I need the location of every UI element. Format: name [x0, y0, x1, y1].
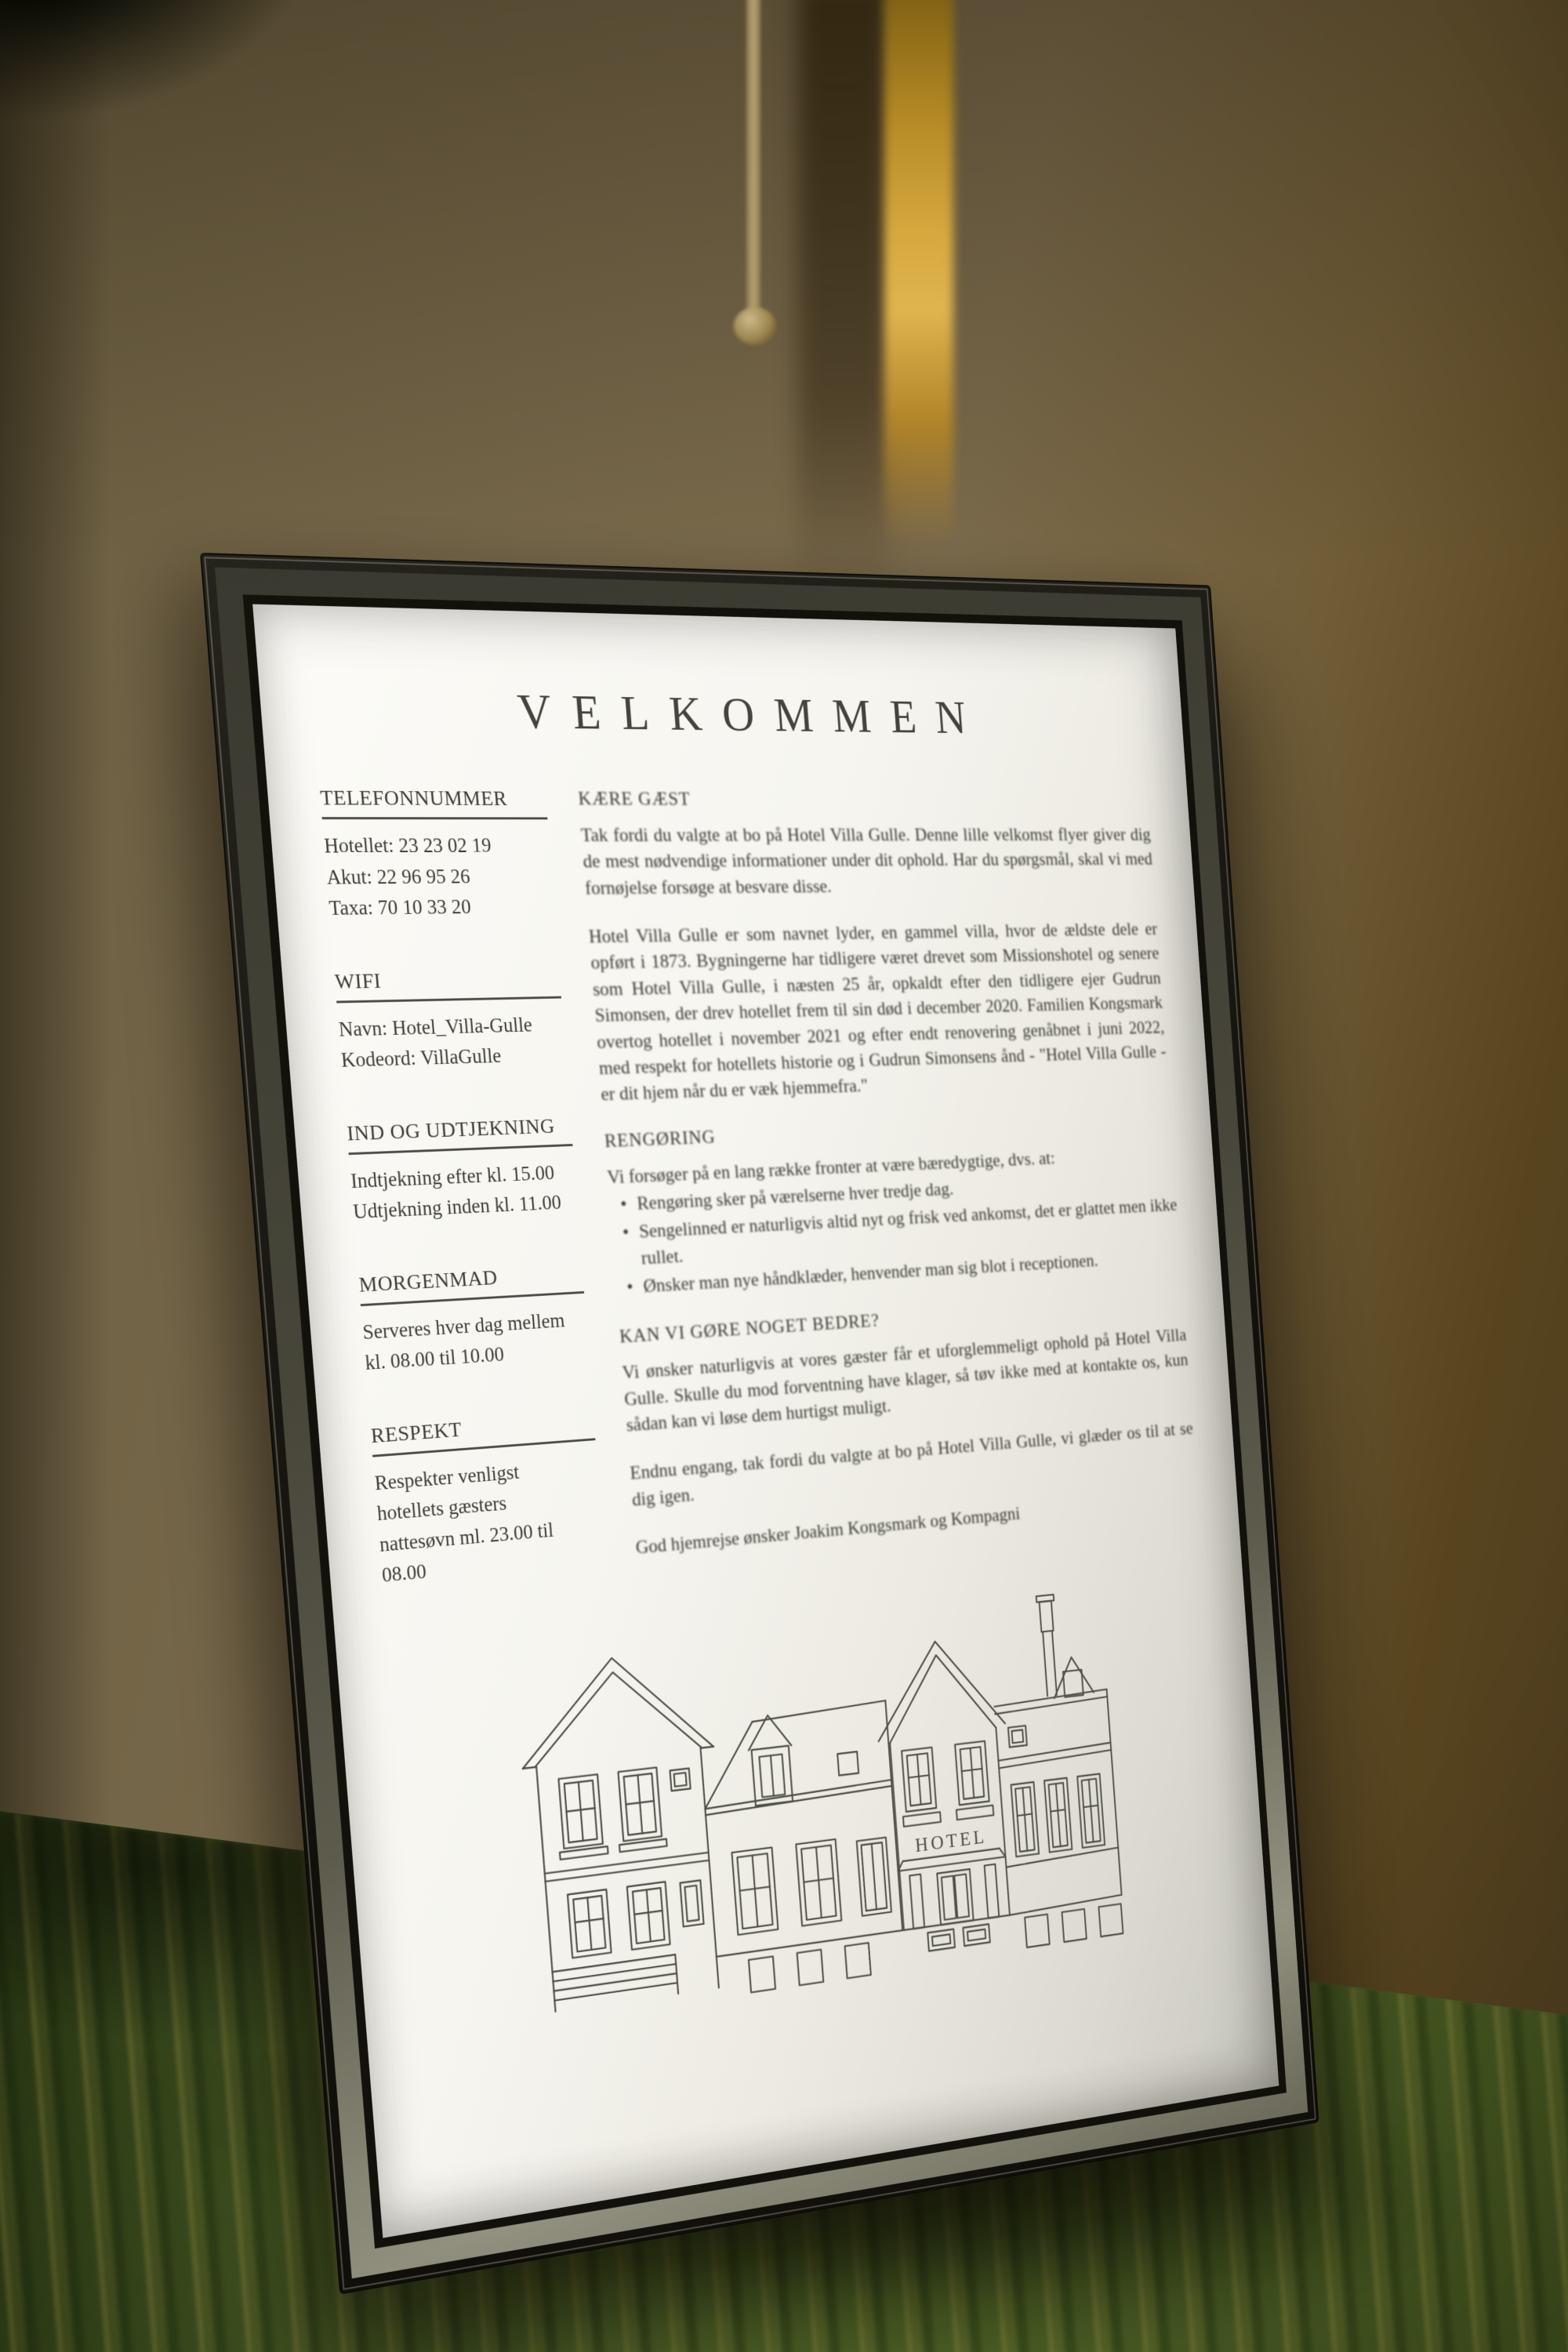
section-checkinout: IND OG UDTJEKNING Indtjekning efter kl. …: [346, 1114, 578, 1228]
history-paragraph: Hotel Villa Gulle er som navnet lyder, e…: [588, 916, 1169, 1108]
phone-line: Akut: 22 96 95 26: [325, 860, 553, 892]
section-heading: TELEFONNUMMER: [319, 786, 547, 820]
section-respekt: RESPEKT Respekter venligst hotellets gæs…: [370, 1408, 605, 1591]
document-body: TELEFONNUMMER Hotellet: 23 23 02 19 Akut…: [309, 786, 1208, 1637]
photo-scene: VELKOMMEN TELEFONNUMMER Hotellet: 23 23 …: [0, 0, 1568, 2352]
phone-line: Hotellet: 23 23 02 19: [323, 830, 551, 862]
frame-bevel: VELKOMMEN TELEFONNUMMER Hotellet: 23 23 …: [215, 568, 1308, 2279]
section-heading: IND OG UDTJEKNING: [346, 1114, 572, 1155]
phone-line: Taxa: 70 10 33 20: [328, 891, 555, 924]
info-column: TELEFONNUMMER Hotellet: 23 23 02 19 Akut…: [319, 786, 608, 1636]
section-heading: RESPEKT: [370, 1408, 596, 1457]
dear-guest-heading: KÆRE GÆST: [577, 787, 1149, 811]
cord-bead: [734, 307, 776, 345]
curtain-shadow: [798, 0, 888, 596]
dear-guest-paragraph: Tak fordi du valgte at bo på Hotel Villa…: [580, 822, 1155, 901]
gold-curtain-stripe: [884, 0, 953, 544]
section-wifi: WIFI Navn: Hotel_Villa-Gulle Kodeord: Vi…: [334, 966, 567, 1076]
wifi-line: Navn: Hotel_Villa-Gulle: [337, 1008, 564, 1044]
page-title: VELKOMMEN: [300, 680, 1150, 747]
section-heading: MORGENMAD: [358, 1261, 584, 1306]
section-heading: WIFI: [334, 966, 561, 1003]
hotel-building-drawing: HOTEL: [500, 1580, 1133, 2038]
picture-frame: VELKOMMEN TELEFONNUMMER Hotellet: 23 23 …: [200, 553, 1319, 2295]
welcome-sheet: VELKOMMEN TELEFONNUMMER Hotellet: 23 23 …: [252, 604, 1279, 2238]
wifi-line: Kodeord: VillaGulle: [340, 1039, 567, 1076]
frame-inner-lip: VELKOMMEN TELEFONNUMMER Hotellet: 23 23 …: [243, 594, 1287, 2249]
pull-cord: [746, 0, 760, 315]
main-text-column: KÆRE GÆST Tak fordi du valgte at bo på H…: [577, 787, 1202, 1611]
frame-outer-edge: VELKOMMEN TELEFONNUMMER Hotellet: 23 23 …: [200, 553, 1319, 2295]
section-telefonnummer: TELEFONNUMMER Hotellet: 23 23 02 19 Akut…: [319, 786, 555, 924]
section-morgenmad: MORGENMAD Serveres hver dag mellem kl. 0…: [358, 1261, 590, 1379]
